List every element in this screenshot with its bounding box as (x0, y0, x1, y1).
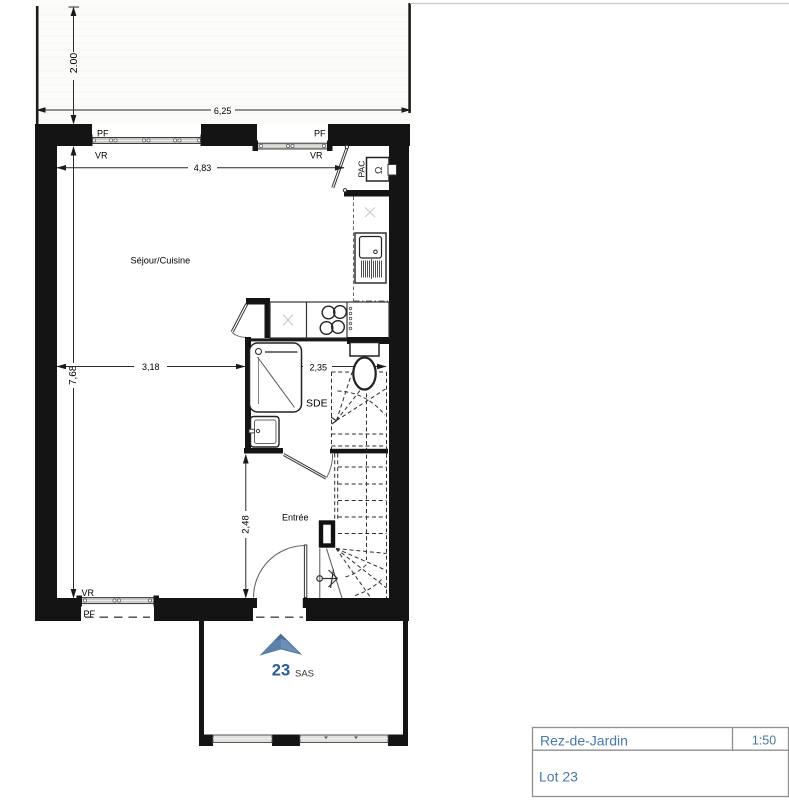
svg-text:1:50: 1:50 (752, 733, 776, 747)
svg-text:VR: VR (310, 151, 323, 161)
svg-text:VR: VR (82, 588, 95, 598)
svg-text:Lot 23: Lot 23 (539, 769, 578, 785)
svg-text:VR: VR (95, 151, 108, 161)
svg-text:PF: PF (84, 609, 96, 619)
svg-text:PF: PF (314, 129, 326, 139)
svg-text:3,18: 3,18 (142, 362, 160, 372)
svg-text:PAC: PAC (357, 161, 367, 178)
svg-text:7,68: 7,68 (68, 365, 79, 385)
svg-text:2,35: 2,35 (310, 362, 328, 372)
svg-text:4,83: 4,83 (194, 163, 212, 173)
svg-text:2,48: 2,48 (240, 515, 251, 534)
svg-text:6,25: 6,25 (214, 106, 232, 116)
svg-text:Séjour/Cuisine: Séjour/Cuisine (131, 256, 191, 266)
svg-text:2.00: 2.00 (68, 53, 80, 74)
svg-text:SDE: SDE (306, 398, 328, 410)
svg-text:Entrée: Entrée (282, 513, 309, 523)
svg-text:SAS: SAS (295, 669, 314, 680)
svg-text:Rez-de-Jardin: Rez-de-Jardin (540, 732, 628, 748)
svg-text:23: 23 (272, 661, 290, 679)
svg-text:Ω: Ω (374, 166, 385, 174)
svg-text:PF: PF (97, 129, 109, 139)
